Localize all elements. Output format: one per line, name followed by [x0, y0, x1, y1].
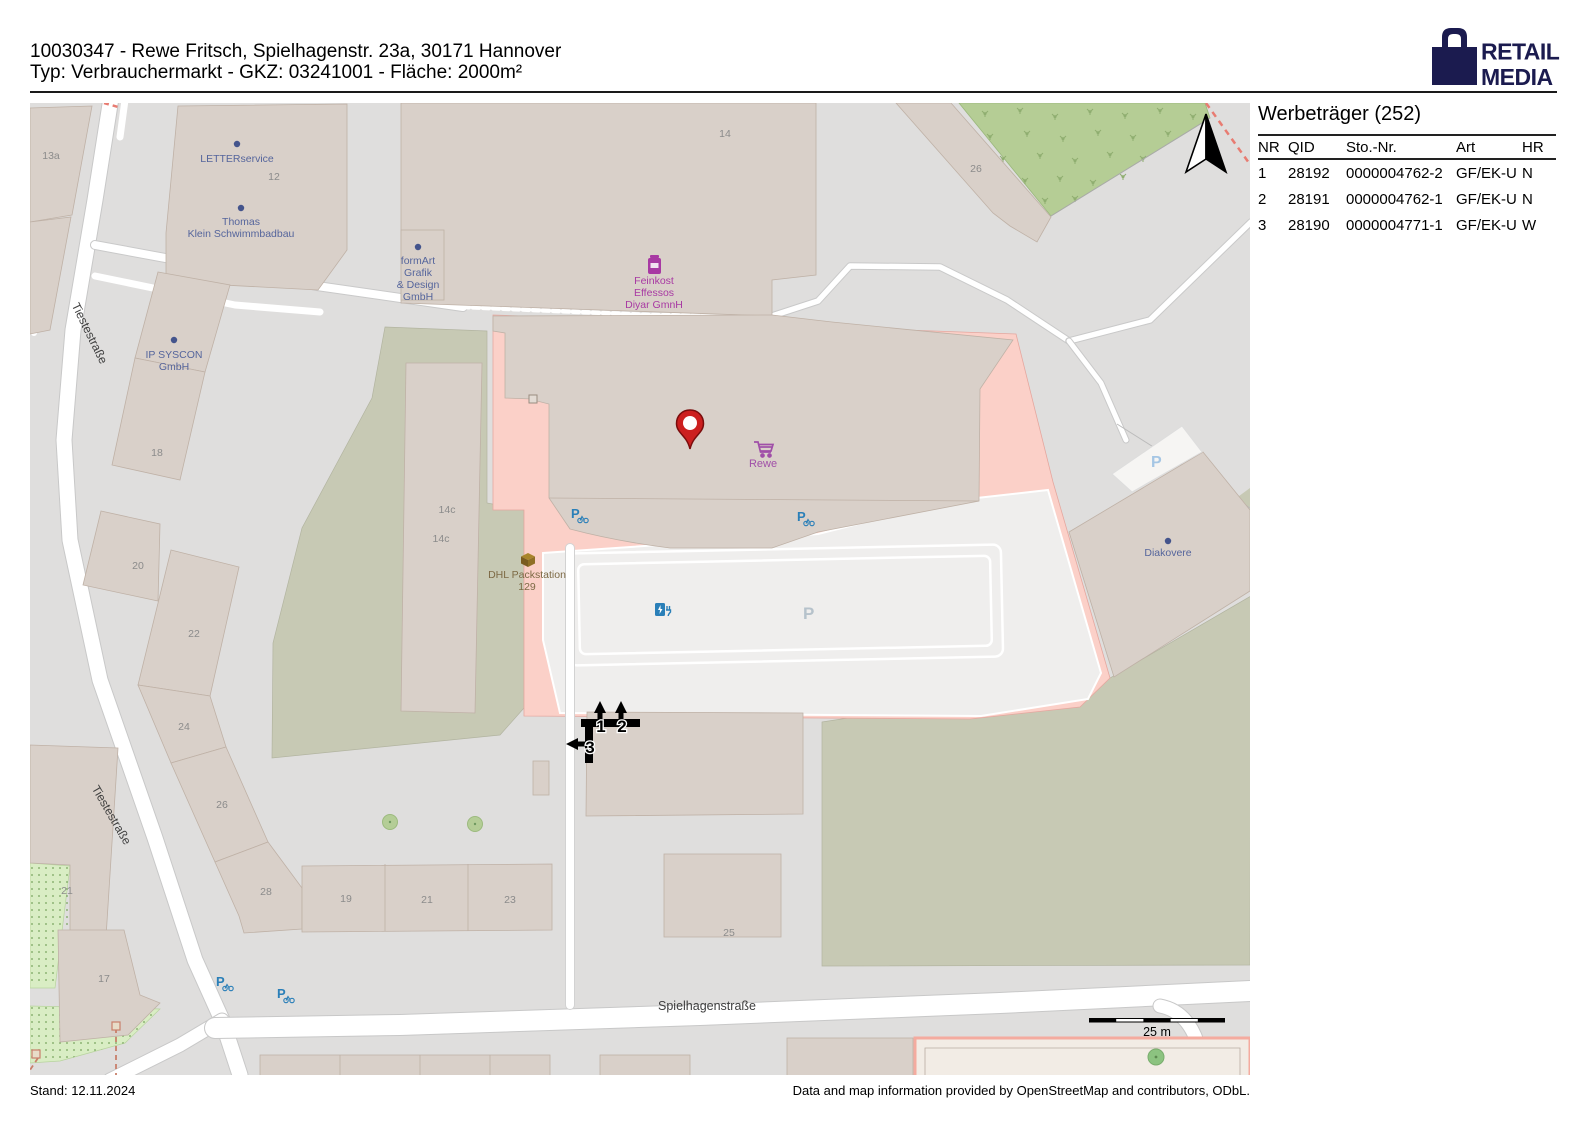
svg-text:14c: 14c [439, 504, 456, 516]
svg-text:Effessos: Effessos [634, 287, 674, 299]
svg-text:22: 22 [188, 628, 200, 640]
svg-text:28: 28 [260, 886, 272, 898]
svg-text:26: 26 [216, 799, 228, 811]
svg-text:14: 14 [719, 128, 731, 140]
svg-text:1: 1 [596, 717, 605, 736]
svg-text:RETAIL: RETAIL [1481, 39, 1560, 65]
svg-text:Feinkost: Feinkost [634, 275, 674, 287]
svg-text:25: 25 [723, 927, 735, 939]
svg-text:Spielhagenstraße: Spielhagenstraße [658, 999, 756, 1013]
svg-text:25 m: 25 m [1143, 1025, 1171, 1039]
svg-text:LETTERservice: LETTERservice [200, 153, 274, 165]
svg-text:Rewe: Rewe [749, 458, 777, 470]
svg-text:3: 3 [585, 738, 594, 757]
svg-text:& Design: & Design [397, 279, 440, 291]
svg-text:IP SYSCON: IP SYSCON [146, 349, 203, 361]
svg-text:Diyar GmnH: Diyar GmnH [625, 299, 683, 311]
svg-text:12: 12 [268, 171, 280, 183]
svg-text:Klein Schwimmbadbau: Klein Schwimmbadbau [188, 228, 295, 240]
svg-text:17: 17 [98, 973, 110, 985]
svg-text:GmbH: GmbH [159, 361, 189, 373]
svg-text:23: 23 [504, 894, 516, 906]
svg-text:14c: 14c [433, 533, 450, 545]
svg-text:MEDIA: MEDIA [1481, 64, 1553, 90]
svg-text:Grafik: Grafik [404, 267, 433, 279]
svg-text:129: 129 [518, 581, 536, 593]
svg-text:21: 21 [61, 885, 73, 897]
svg-text:P: P [803, 604, 814, 623]
svg-text:Diakovere: Diakovere [1144, 547, 1191, 559]
svg-text:DHL Packstation: DHL Packstation [488, 569, 566, 581]
svg-text:26: 26 [970, 163, 982, 175]
svg-text:18: 18 [151, 447, 163, 459]
svg-text:20: 20 [132, 560, 144, 572]
svg-text:13a: 13a [42, 150, 60, 162]
svg-text:Thomas: Thomas [222, 216, 260, 228]
svg-text:GmbH: GmbH [403, 291, 433, 303]
svg-text:formArt: formArt [401, 255, 436, 267]
svg-text:2: 2 [617, 717, 626, 736]
svg-text:19: 19 [340, 893, 352, 905]
svg-text:24: 24 [178, 721, 190, 733]
svg-text:21: 21 [421, 894, 433, 906]
svg-text:P: P [1151, 454, 1162, 471]
